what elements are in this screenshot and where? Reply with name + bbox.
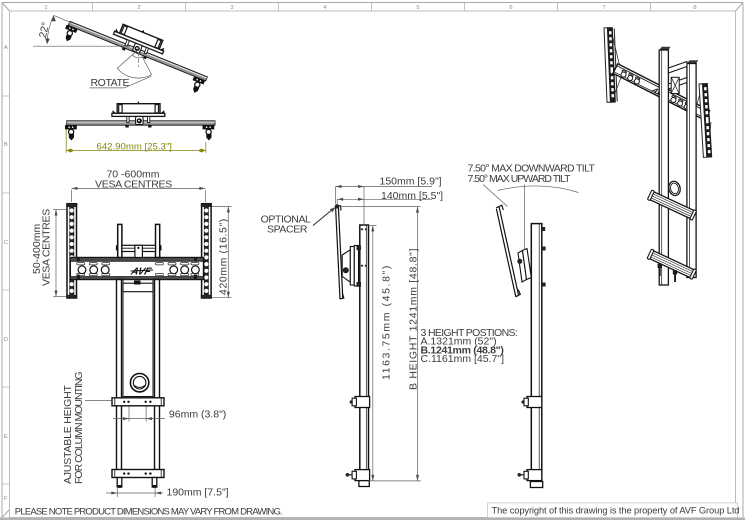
svg-text:7.50° MAX UPWARD TILT: 7.50° MAX UPWARD TILT	[468, 173, 572, 185]
svg-text:140mm [5.5"]: 140mm [5.5"]	[381, 190, 443, 202]
svg-text:E: E	[4, 434, 8, 440]
svg-text:642.90mm [25.3"]: 642.90mm [25.3"]	[97, 142, 172, 153]
svg-text:The copyright of this drawing: The copyright of this drawing is the pro…	[492, 506, 740, 516]
svg-text:420mm (16.5"): 420mm (16.5")	[218, 218, 230, 295]
svg-text:7: 7	[602, 5, 605, 11]
svg-text:PLEASE NOTE PRODUCT DIMENSIONS: PLEASE NOTE PRODUCT DIMENSIONS MAY VARY …	[15, 507, 282, 518]
svg-text:150mm [5.9"]: 150mm [5.9"]	[380, 175, 442, 187]
svg-text:190mm [7.5"]: 190mm [7.5"]	[167, 487, 229, 499]
svg-text:C: C	[4, 240, 8, 246]
svg-text:1: 1	[44, 5, 47, 11]
svg-text:C.1161mm [45.7"]: C.1161mm [45.7"]	[421, 353, 505, 365]
svg-text:FOR COLUMN MOUNTING: FOR COLUMN MOUNTING	[73, 372, 85, 484]
svg-text:D: D	[4, 337, 8, 343]
svg-text:SPACER: SPACER	[267, 223, 308, 235]
svg-text:B: B	[4, 142, 8, 148]
svg-text:96mm (3.8"): 96mm (3.8")	[169, 409, 226, 421]
svg-text:A: A	[4, 45, 8, 51]
svg-text:5: 5	[416, 5, 419, 11]
svg-text:6: 6	[509, 5, 512, 11]
svg-text:1163.75mm (45.8"): 1163.75mm (45.8")	[381, 264, 393, 380]
svg-text:8: 8	[693, 5, 696, 11]
svg-text:B HEIGHT 1241mm [48.8"]: B HEIGHT 1241mm [48.8"]	[408, 248, 420, 390]
svg-text:VESA CENTRES: VESA CENTRES	[41, 209, 53, 286]
svg-text:ROTATE: ROTATE	[91, 77, 130, 89]
svg-text:2: 2	[137, 5, 140, 11]
svg-text:3: 3	[230, 5, 233, 11]
svg-text:F: F	[4, 496, 8, 502]
